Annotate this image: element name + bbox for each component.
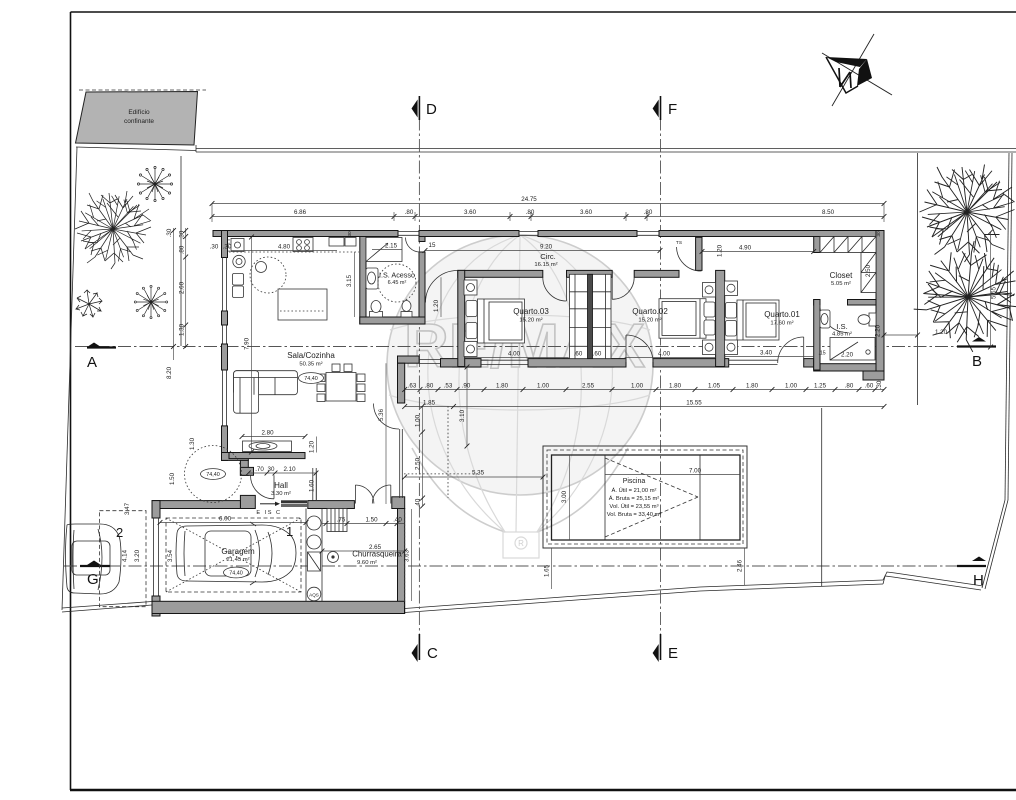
svg-text:.60: .60: [865, 383, 874, 390]
svg-text:1.60: 1.60: [309, 479, 316, 492]
svg-text:4.00: 4.00: [658, 351, 671, 358]
svg-text:30: 30: [268, 466, 275, 473]
svg-text:2: 2: [116, 525, 123, 540]
svg-text:9.20: 9.20: [540, 244, 553, 251]
svg-text:2.15: 2.15: [385, 243, 398, 250]
svg-text:1.50: 1.50: [169, 472, 176, 485]
svg-text:2.46: 2.46: [737, 559, 744, 572]
svg-text:TS: TS: [676, 240, 682, 246]
svg-text:2.20: 2.20: [841, 352, 854, 359]
svg-text:9.60 m²: 9.60 m²: [357, 560, 377, 566]
svg-text:.75: .75: [337, 517, 346, 524]
svg-text:15: 15: [429, 242, 436, 249]
svg-text:1.50: 1.50: [365, 517, 378, 524]
svg-text:1.00: 1.00: [785, 383, 798, 390]
svg-text:7.90: 7.90: [244, 337, 251, 350]
svg-text:I.S.: I.S.: [836, 322, 847, 331]
svg-text:15.20 m²: 15.20 m²: [519, 318, 542, 324]
svg-text:3.40: 3.40: [760, 350, 773, 357]
svg-text:1.20: 1.20: [935, 329, 948, 336]
svg-text:2.50: 2.50: [865, 264, 872, 277]
svg-text:Á. Bruta = 25,15 m²: Á. Bruta = 25,15 m²: [609, 495, 659, 502]
svg-text:Closet: Closet: [830, 271, 853, 280]
svg-text:3.20: 3.20: [134, 549, 141, 562]
svg-text:1.80: 1.80: [746, 383, 759, 390]
svg-text:1.80: 1.80: [669, 383, 682, 390]
svg-text:Piscina: Piscina: [623, 478, 646, 485]
svg-text:.30: .30: [223, 244, 232, 251]
svg-text:1.00: 1.00: [537, 383, 550, 390]
svg-text:2.55: 2.55: [582, 383, 595, 390]
svg-text:1.20: 1.20: [309, 440, 316, 453]
svg-text:F: F: [668, 101, 677, 118]
svg-text:5.55: 5.55: [991, 286, 998, 299]
svg-text:1.85: 1.85: [423, 400, 436, 407]
svg-text:2.20: 2.20: [875, 324, 882, 337]
svg-text:Hall: Hall: [274, 481, 288, 490]
svg-text:15.55: 15.55: [686, 400, 702, 407]
svg-text:.80: .80: [845, 383, 854, 390]
svg-text:.30: .30: [210, 244, 219, 251]
svg-text:1.25: 1.25: [814, 383, 827, 390]
svg-text:A: A: [87, 354, 97, 371]
svg-text:3.47: 3.47: [124, 502, 131, 515]
svg-text:3.30 m²: 3.30 m²: [271, 491, 291, 497]
svg-text:15.20 m²: 15.20 m²: [638, 318, 661, 324]
svg-text:16.15 m²: 16.15 m²: [534, 262, 557, 268]
svg-text:B: B: [972, 353, 982, 370]
svg-text:Edifício: Edifício: [128, 109, 150, 116]
svg-text:.30: .30: [179, 230, 186, 239]
svg-text:5.36: 5.36: [378, 408, 385, 421]
svg-text:1.20: 1.20: [717, 244, 724, 257]
svg-text:5.35: 5.35: [472, 470, 485, 477]
svg-text:3.63: 3.63: [404, 549, 411, 562]
svg-text:.80: .80: [425, 383, 434, 390]
svg-text:.60: .60: [593, 351, 602, 358]
svg-text:Circ.: Circ.: [540, 252, 556, 261]
svg-text:AQS: AQS: [309, 592, 319, 597]
svg-text:Quarto.03: Quarto.03: [513, 307, 549, 316]
svg-text:R: R: [518, 539, 524, 548]
svg-text:1.05: 1.05: [708, 383, 721, 390]
svg-text:.30: .30: [166, 228, 173, 237]
svg-text:.80: .80: [526, 209, 535, 216]
svg-text:2.60: 2.60: [179, 281, 186, 294]
svg-text:E IS C: E IS C: [256, 510, 281, 516]
svg-text:2.80: 2.80: [261, 430, 274, 437]
svg-text:D: D: [426, 101, 437, 118]
svg-text:.80: .80: [405, 209, 414, 216]
svg-text:Vol. Útil = 23,55 m³: Vol. Útil = 23,55 m³: [609, 503, 658, 510]
svg-text:.90: .90: [462, 383, 471, 390]
svg-text:I.S. Acesso: I.S. Acesso: [379, 271, 415, 280]
svg-text:30: 30: [876, 231, 882, 237]
svg-text:74,40: 74,40: [229, 571, 243, 577]
svg-text:.80: .80: [644, 209, 653, 216]
svg-text:Vol. Bruta = 33,40 m³: Vol. Bruta = 33,40 m³: [607, 512, 662, 518]
svg-text:30: 30: [347, 231, 353, 237]
svg-text:1.00: 1.00: [631, 383, 644, 390]
svg-text:.60: .60: [574, 351, 583, 358]
svg-text:G: G: [87, 571, 99, 588]
svg-text:6.86: 6.86: [294, 209, 307, 216]
svg-text:3.60: 3.60: [464, 209, 477, 216]
svg-text:17.60 m²: 17.60 m²: [770, 321, 793, 327]
svg-text:8.20: 8.20: [166, 366, 173, 379]
svg-text:50.35 m²: 50.35 m²: [299, 362, 322, 368]
svg-text:.30: .30: [876, 380, 883, 389]
svg-text:1.80: 1.80: [496, 383, 509, 390]
svg-text:6.00: 6.00: [219, 516, 232, 523]
svg-text:4.00: 4.00: [508, 351, 521, 358]
svg-text:1.65: 1.65: [544, 564, 551, 577]
svg-text:confinante: confinante: [124, 118, 154, 125]
svg-text:21,45 m²: 21,45 m²: [226, 557, 249, 563]
svg-text:.40: .40: [415, 498, 422, 507]
svg-text:4.14: 4.14: [122, 549, 129, 562]
svg-text:7.00: 7.00: [689, 468, 702, 475]
svg-text:H: H: [973, 572, 984, 589]
svg-text:3.54: 3.54: [167, 549, 174, 562]
svg-text:24.75: 24.75: [521, 196, 537, 203]
svg-text:3.60: 3.60: [580, 209, 593, 216]
svg-text:74,40: 74,40: [304, 376, 318, 382]
svg-text:E: E: [668, 645, 678, 662]
svg-text:.70: .70: [255, 466, 264, 473]
svg-text:.80: .80: [179, 245, 186, 254]
svg-text:2.50: 2.50: [415, 457, 422, 470]
svg-text:3.00: 3.00: [561, 490, 568, 503]
svg-text:Quarto.02: Quarto.02: [632, 307, 668, 316]
svg-text:Garagem: Garagem: [221, 547, 255, 556]
svg-text:3.15: 3.15: [346, 274, 353, 287]
svg-text:Sala/Cozinha: Sala/Cozinha: [287, 351, 335, 360]
svg-text:3.10: 3.10: [459, 409, 466, 422]
svg-text:Quarto.01: Quarto.01: [764, 310, 800, 319]
svg-text:1.30: 1.30: [189, 437, 196, 450]
svg-text:Churrasqueira: Churrasqueira: [352, 550, 402, 559]
svg-text:5.05 m²: 5.05 m²: [831, 281, 851, 287]
svg-text:2.10: 2.10: [283, 466, 296, 473]
svg-text:.40: .40: [393, 517, 402, 524]
svg-text:1: 1: [286, 524, 293, 539]
svg-text:.15: .15: [818, 351, 825, 357]
svg-text:4.80: 4.80: [278, 244, 291, 251]
svg-text:.53: .53: [444, 383, 453, 390]
svg-text:1.20: 1.20: [433, 299, 440, 312]
svg-text:.63: .63: [408, 383, 417, 390]
svg-text:4.85 m²: 4.85 m²: [832, 332, 852, 338]
svg-text:1.30: 1.30: [179, 323, 186, 336]
svg-text:1.00: 1.00: [415, 414, 422, 427]
svg-text:C: C: [427, 645, 438, 662]
svg-text:Á. Útil = 21,00 m²: Á. Útil = 21,00 m²: [612, 487, 657, 494]
svg-text:8.50: 8.50: [822, 209, 835, 216]
svg-text:6.45 m²: 6.45 m²: [388, 280, 407, 286]
svg-text:4.90: 4.90: [739, 245, 752, 252]
svg-text:74,40: 74,40: [206, 472, 220, 478]
